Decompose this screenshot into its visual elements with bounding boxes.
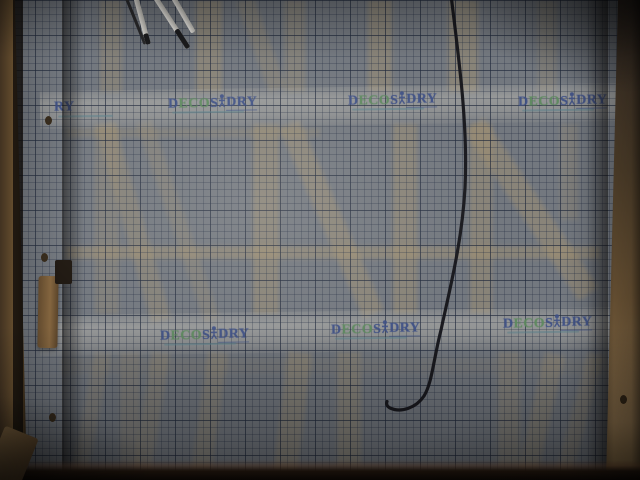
wood-knot (41, 253, 48, 262)
dark-wood-block (55, 260, 72, 284)
cable-layer (0, 0, 640, 480)
wood-knot (49, 413, 56, 422)
wood-knot (45, 116, 52, 125)
floor-strip (0, 460, 640, 480)
wood-knot (620, 395, 627, 404)
post-gap-shadow (13, 0, 23, 480)
sheet-shadow-right (586, 0, 608, 480)
electrical-cable (387, 0, 466, 410)
attached-plank (37, 276, 58, 348)
construction-wall-photo: RY DECOS DRY DECOS DRY DECOS DRY (0, 0, 640, 480)
